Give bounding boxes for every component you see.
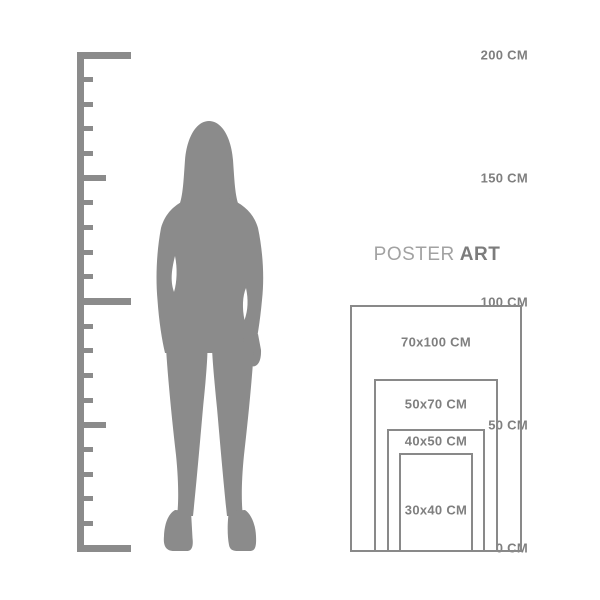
silhouette-right-leg — [212, 348, 254, 516]
brand-heading: POSTERART — [374, 244, 501, 266]
poster-size-label-30x40-cm: 30x40 CM — [405, 503, 467, 518]
silhouette-right-boot — [228, 510, 256, 551]
poster-size-label-40x50-cm: 40x50 CM — [405, 433, 467, 448]
silhouette-left-boot — [164, 510, 193, 551]
silhouette-left-leg — [166, 348, 208, 516]
poster-size-label-50x70-cm: 50x70 CM — [405, 396, 467, 411]
brand-poster: POSTER — [374, 244, 455, 265]
size-guide-diagram: 200 CM150 CM100 CM50 CM0 CM POSTERART 70… — [0, 0, 600, 600]
poster-size-label-70x100-cm: 70x100 CM — [401, 335, 471, 350]
brand-art: ART — [460, 244, 501, 265]
